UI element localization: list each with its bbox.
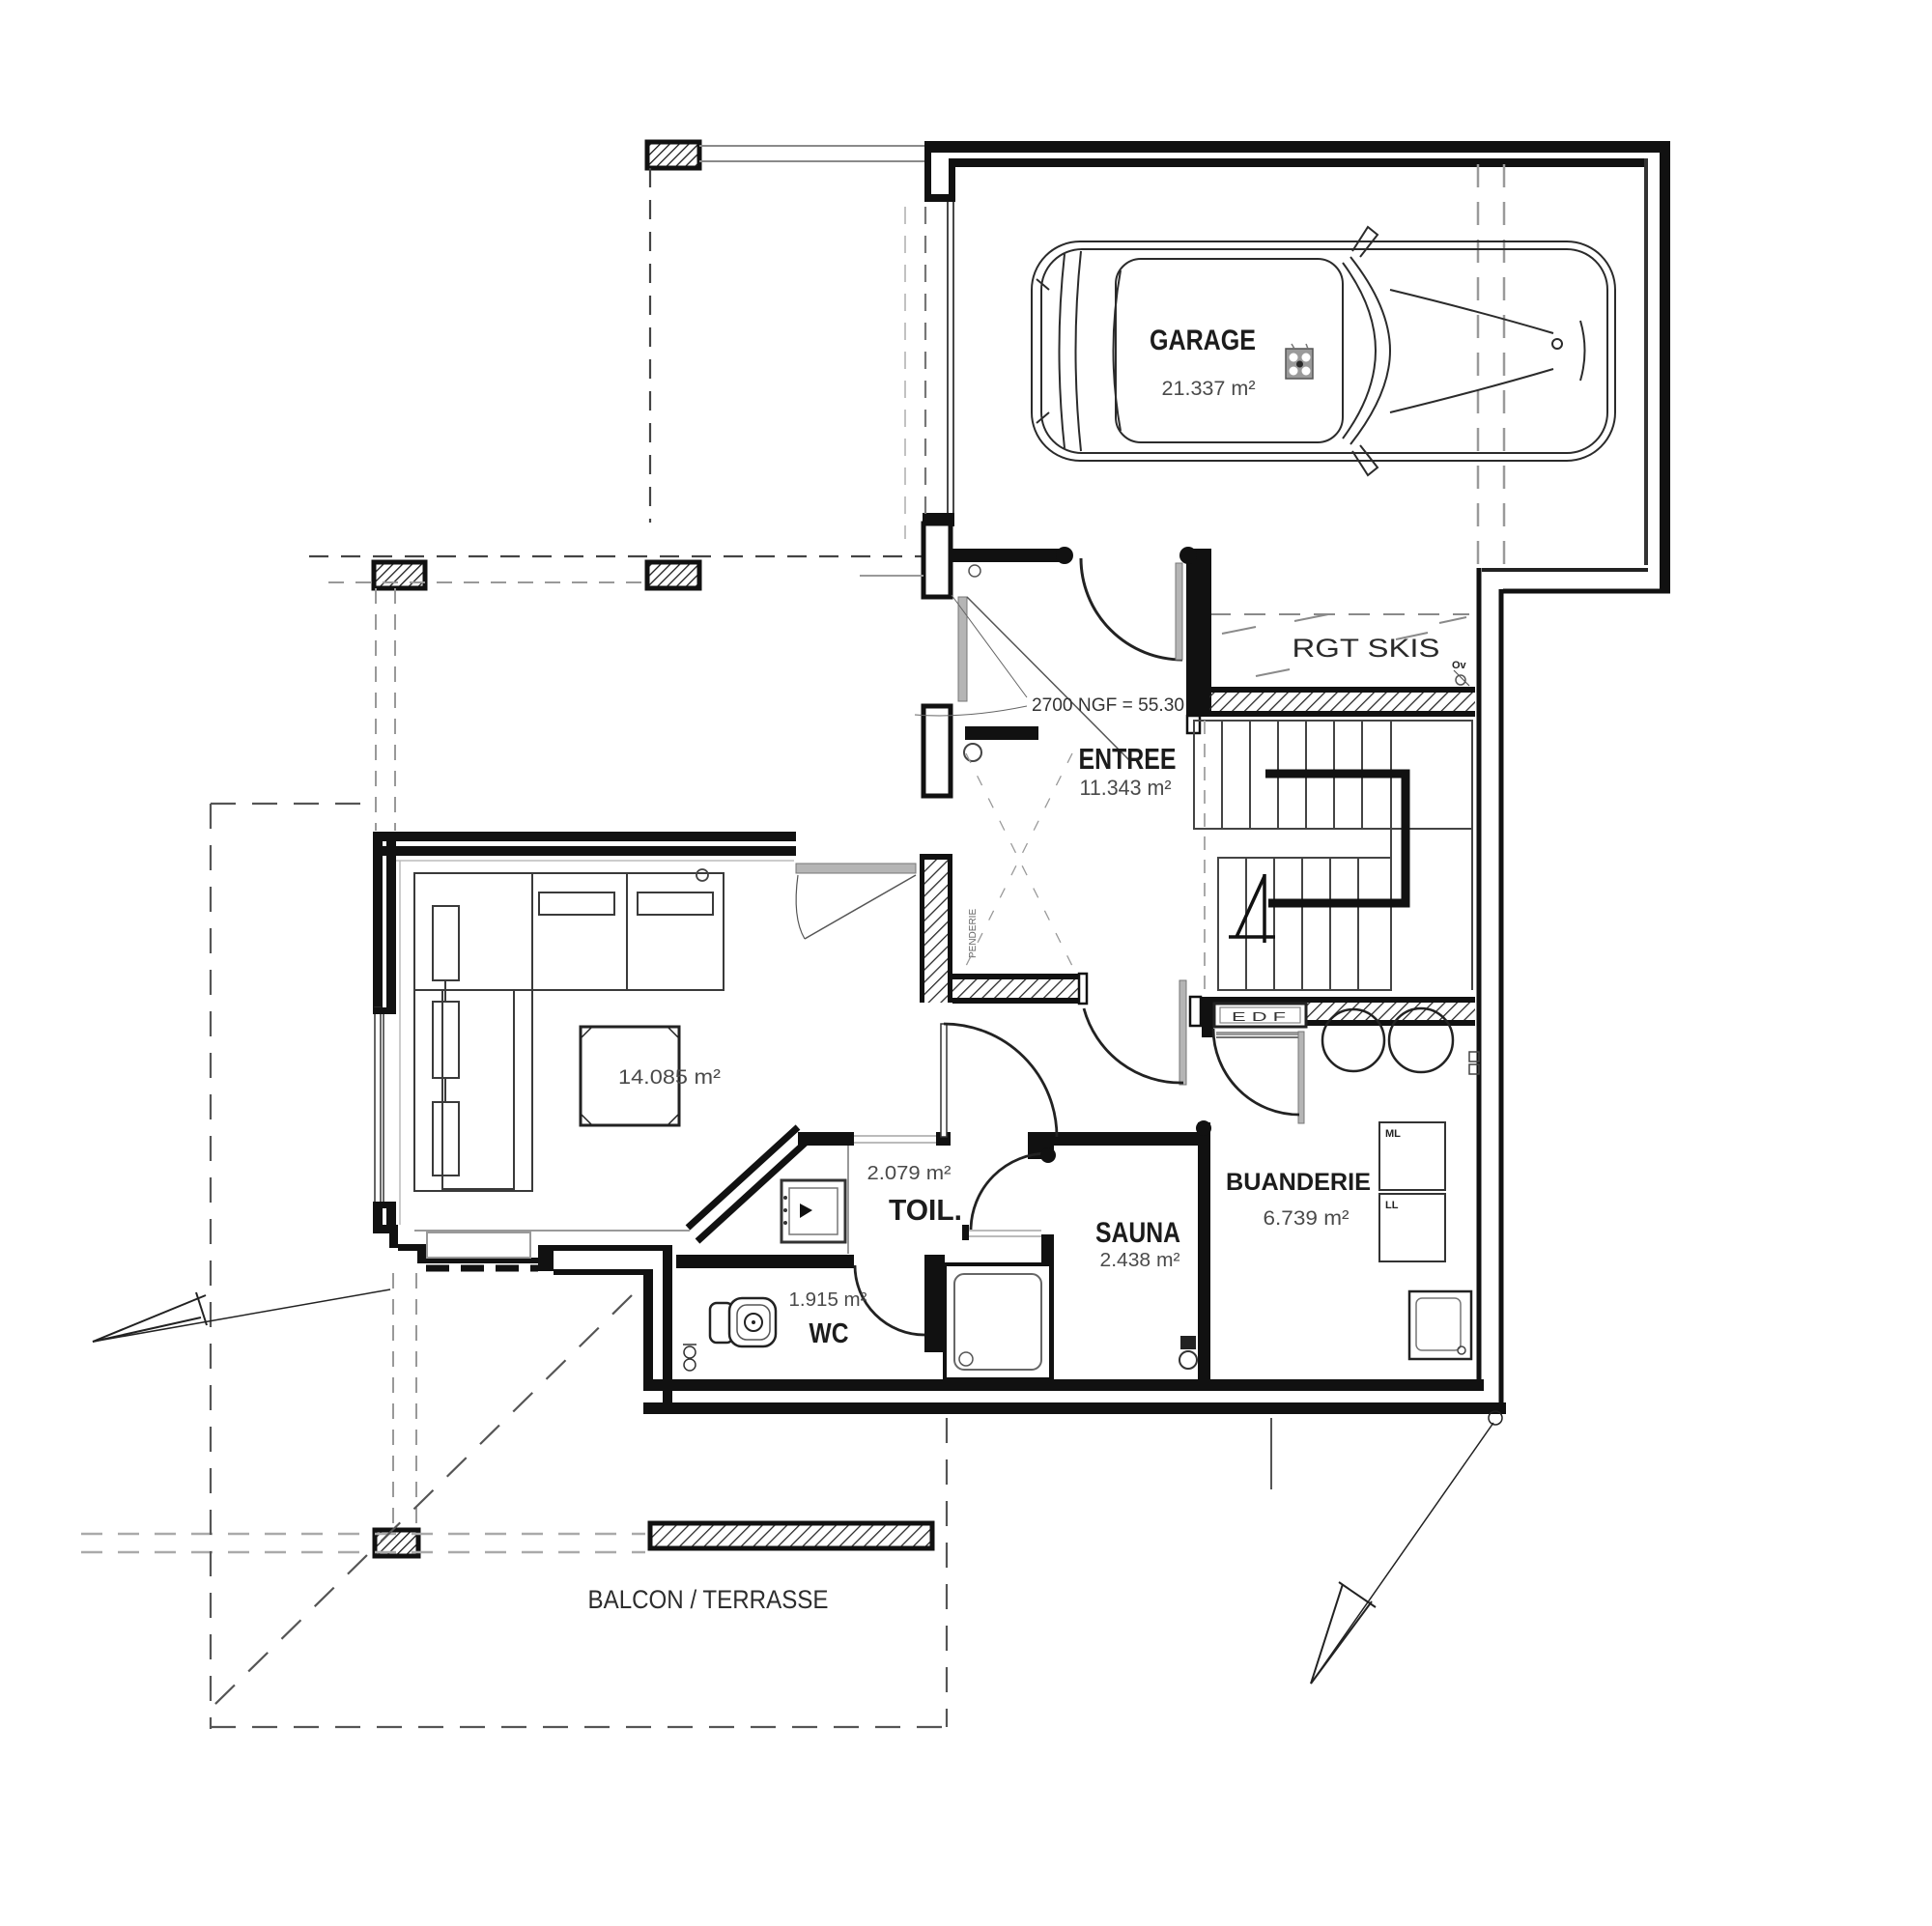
svg-text:TOIL.: TOIL. [889, 1193, 962, 1227]
svg-text:WC: WC [810, 1318, 849, 1349]
svg-text:2.079 m²: 2.079 m² [867, 1163, 952, 1184]
svg-text:11.343 m²: 11.343 m² [1080, 776, 1172, 800]
svg-text:E D F: E D F [1232, 1009, 1286, 1024]
svg-text:SAUNA: SAUNA [1095, 1217, 1180, 1249]
svg-text:LL: LL [1385, 1200, 1399, 1211]
svg-text:Ov: Ov [1452, 660, 1467, 671]
svg-text:BUANDERIE: BUANDERIE [1226, 1169, 1371, 1196]
svg-text:BALCON / TERRASSE: BALCON / TERRASSE [588, 1585, 829, 1614]
svg-text:21.337 m²: 21.337 m² [1162, 378, 1256, 400]
svg-text:RGT SKIS: RGT SKIS [1293, 634, 1440, 663]
svg-text:ML: ML [1385, 1128, 1401, 1140]
svg-text:2.438 m²: 2.438 m² [1100, 1250, 1180, 1271]
svg-text:14.085 m²: 14.085 m² [618, 1066, 721, 1089]
svg-text:PENDERIE: PENDERIE [968, 909, 979, 958]
svg-text:2700 NGF = 55.30: 2700 NGF = 55.30 [1032, 695, 1184, 716]
svg-text:1.915 m²: 1.915 m² [789, 1289, 867, 1311]
svg-text:ENTREE: ENTREE [1079, 742, 1177, 776]
svg-text:GARAGE: GARAGE [1150, 325, 1256, 356]
svg-text:6.739 m²: 6.739 m² [1264, 1207, 1350, 1230]
